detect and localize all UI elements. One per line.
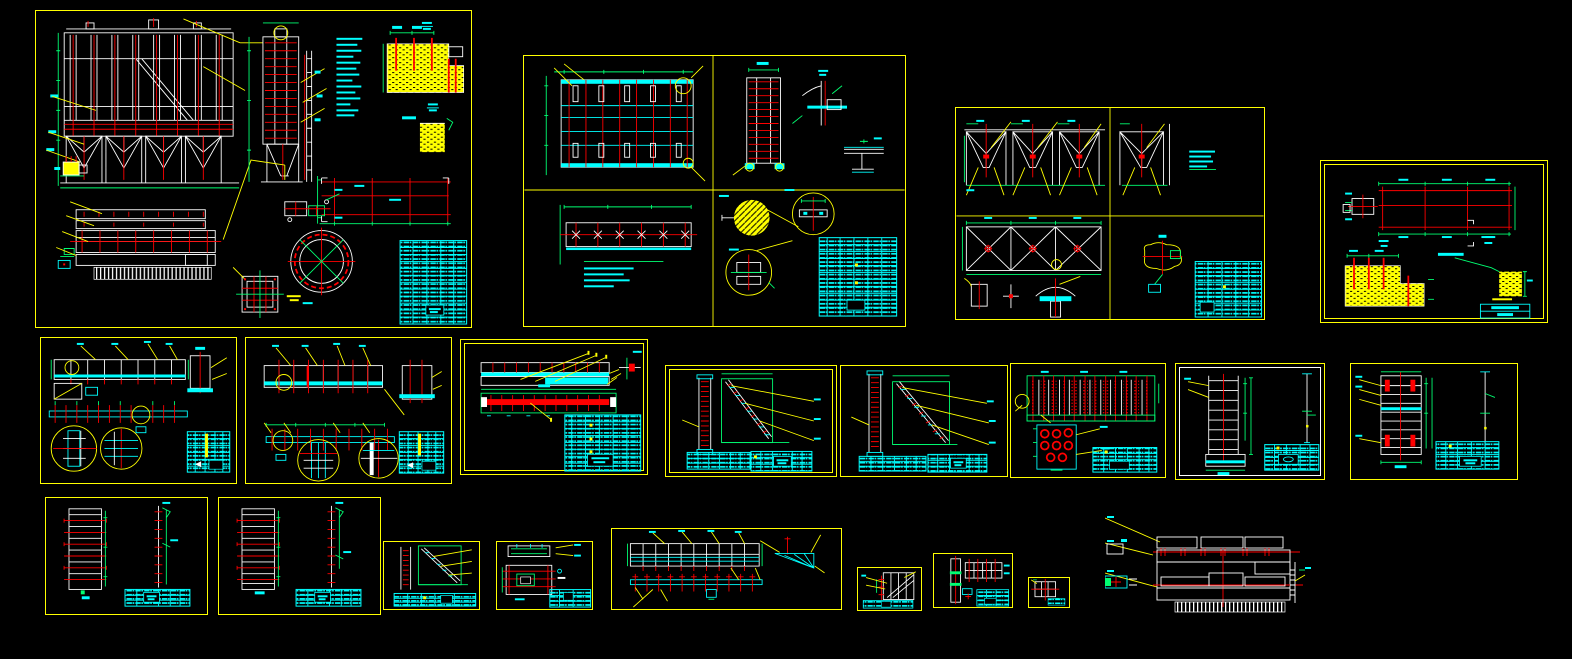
sheet-general-assembly bbox=[35, 10, 472, 328]
sheet-brace-detail bbox=[857, 567, 922, 611]
sheet-ladder-1 bbox=[1175, 363, 1325, 480]
sheet-stair-detail bbox=[383, 541, 480, 610]
sheet-cathode-beam bbox=[460, 339, 648, 475]
sheet-grid-detail bbox=[1028, 577, 1070, 608]
sheet-ladder-2 bbox=[1350, 363, 1518, 480]
sheet-electrode-bank bbox=[1010, 363, 1166, 478]
sheet-column-detail bbox=[933, 553, 1013, 608]
sheet-girder-2 bbox=[245, 337, 452, 484]
sheet-stair-2 bbox=[840, 365, 1008, 477]
sheet-louver-panel-2 bbox=[218, 497, 381, 615]
sheet-stair-1 bbox=[665, 365, 837, 477]
sheet-hoppers-and-brace-frame bbox=[955, 107, 1265, 320]
sheet-beam-section bbox=[496, 541, 593, 610]
sheet-walkway-beam bbox=[611, 528, 842, 610]
sheet-roof-plan bbox=[1105, 515, 1320, 615]
sheet-foundation-plan bbox=[1320, 160, 1548, 323]
sheet-panel-and-column bbox=[523, 55, 906, 327]
sheet-girder-1 bbox=[40, 337, 237, 484]
model-space-canvas bbox=[0, 0, 1572, 659]
sheet-louver-panel-1 bbox=[45, 497, 208, 615]
